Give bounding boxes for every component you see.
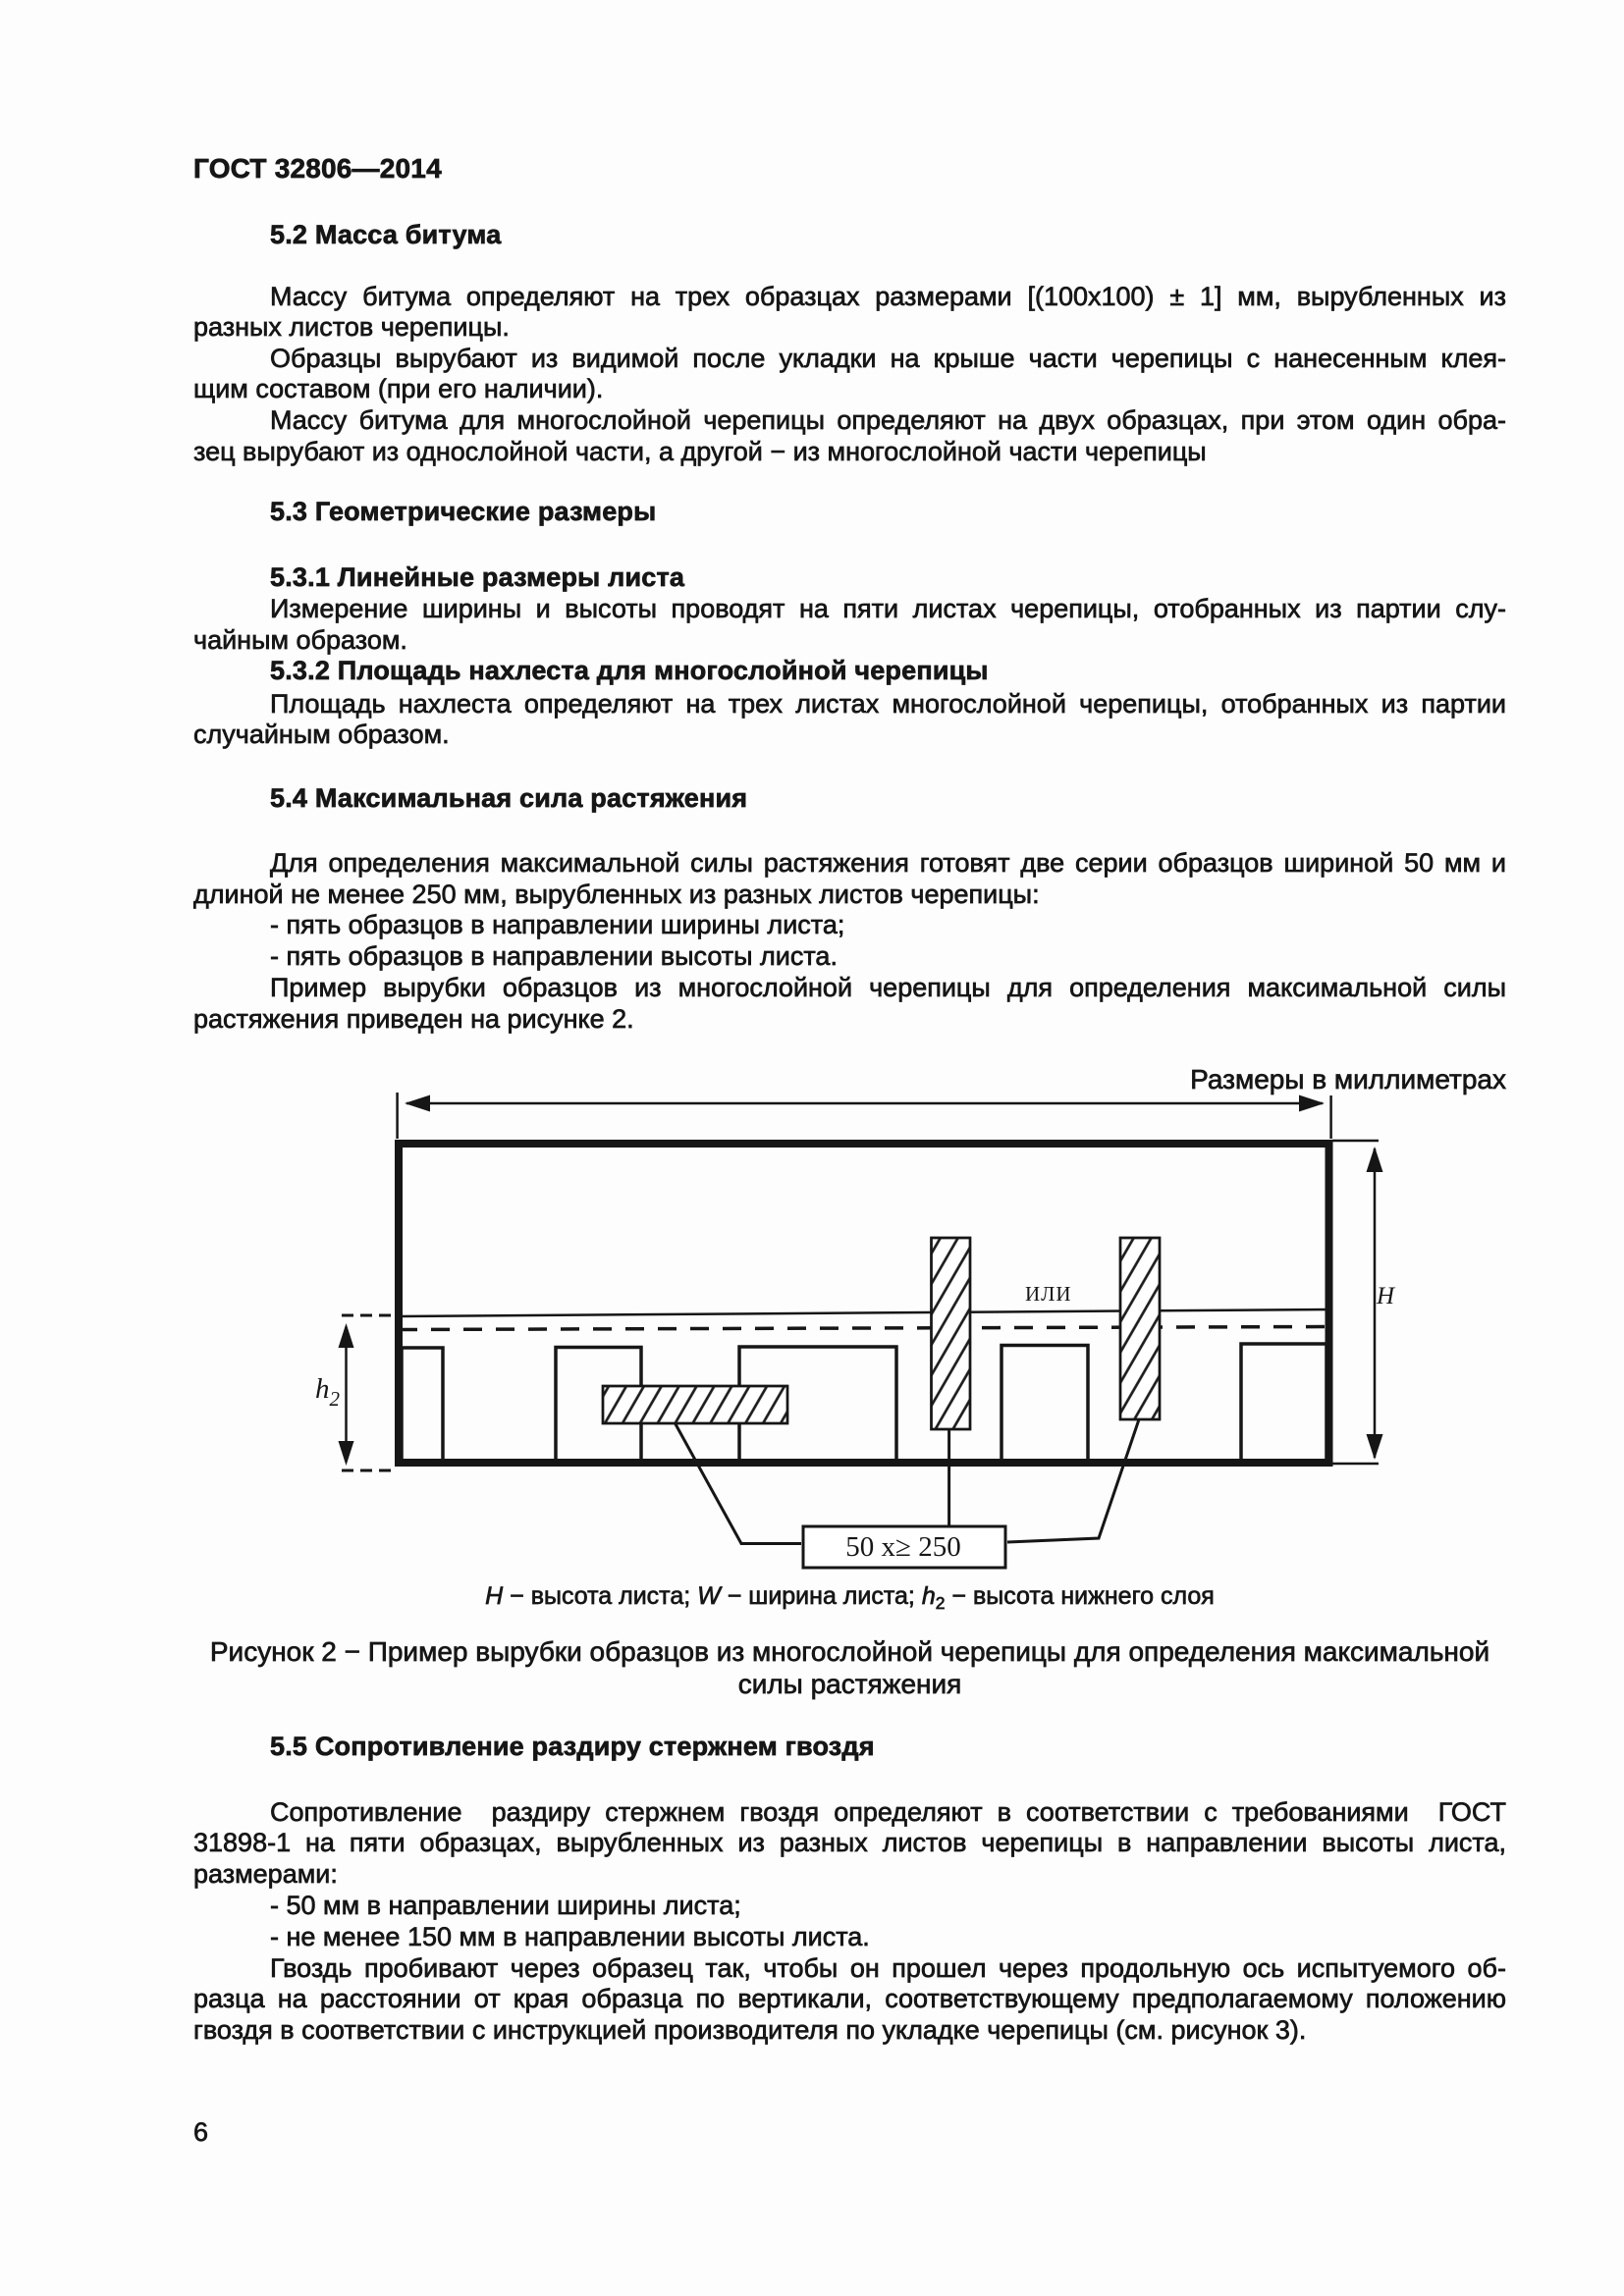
svg-text:ИЛИ: ИЛИ xyxy=(1025,1282,1072,1306)
svg-text:H: H xyxy=(1376,1283,1396,1309)
svg-text:h2: h2 xyxy=(315,1373,341,1411)
svg-text:50 x≥ 250: 50 x≥ 250 xyxy=(845,1531,960,1563)
